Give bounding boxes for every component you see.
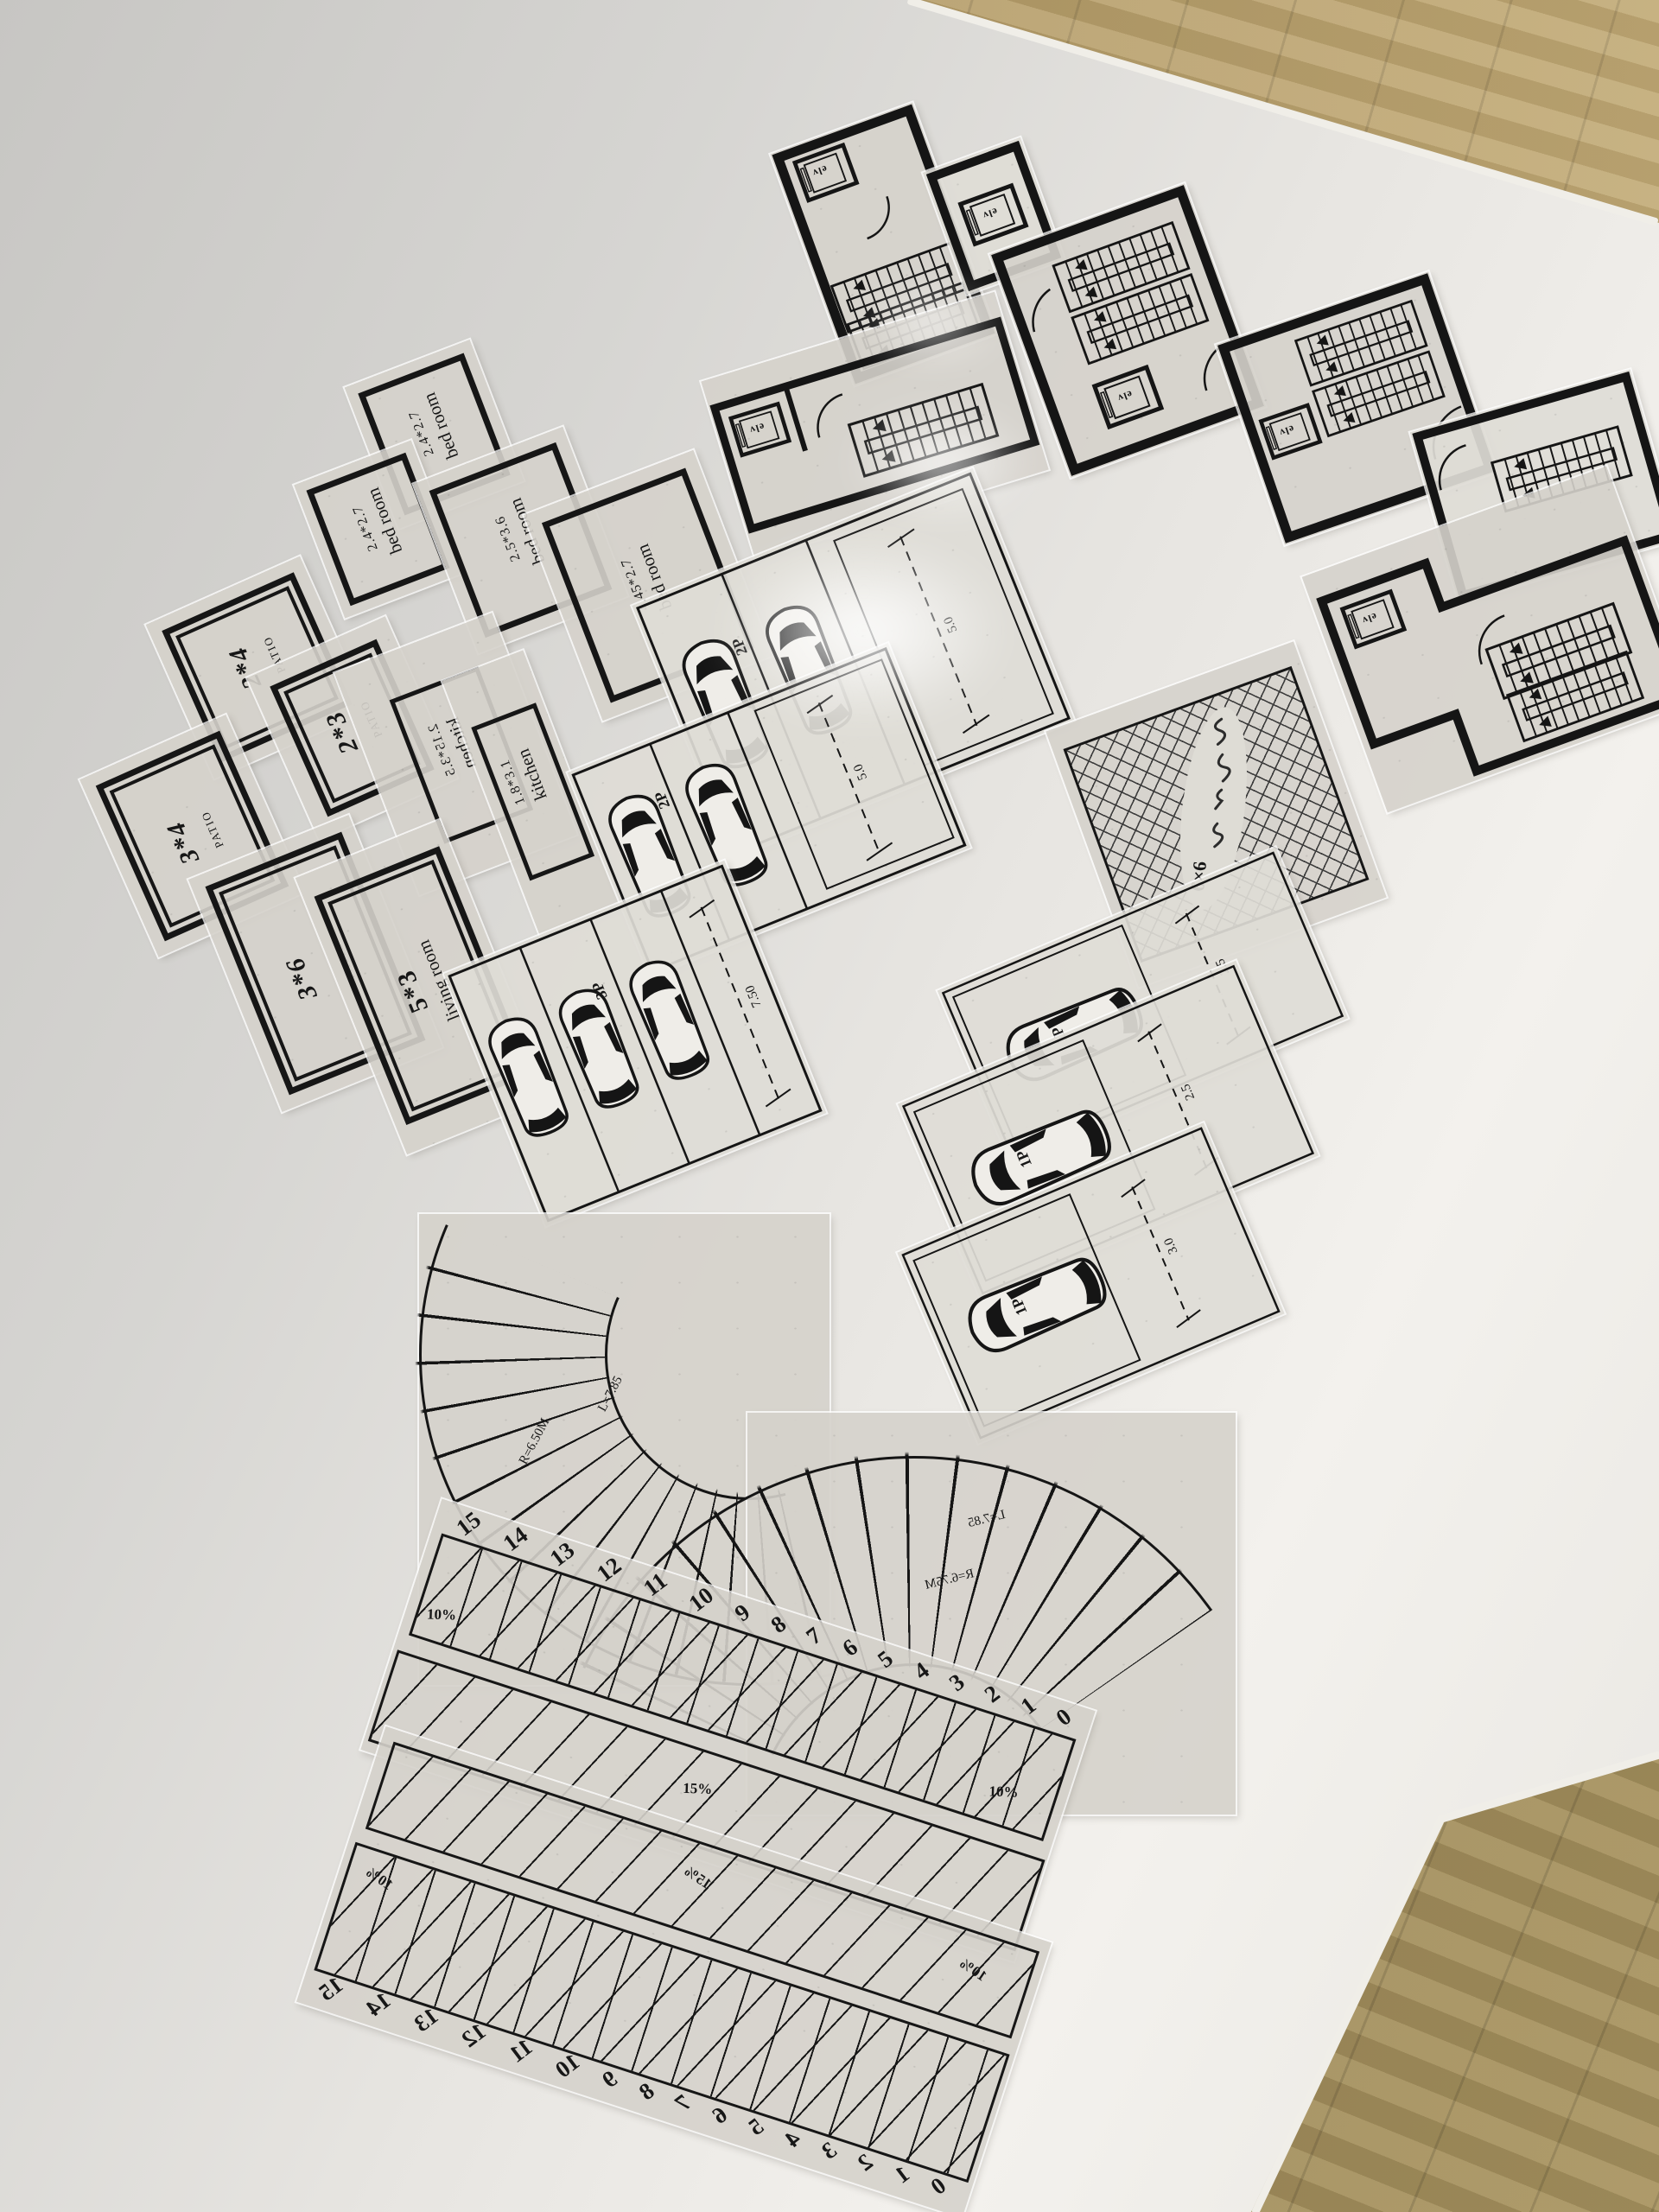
ramp-number: 3 — [944, 1669, 971, 1699]
ramp-number: 0 — [926, 2172, 954, 2204]
ramp-number: 5 — [873, 1645, 899, 1675]
ramp-number: 4 — [908, 1656, 935, 1687]
ramp-number: 9 — [597, 2065, 625, 2097]
ramp-number: 8 — [633, 2077, 661, 2109]
car-icon — [625, 955, 714, 1084]
photo-drafting-templates-on-table: elv elv elv elv — [0, 0, 1659, 2212]
ramp-number: 0 — [1052, 1703, 1078, 1733]
ramp-number: 4 — [780, 2125, 808, 2157]
slope-label: 15% — [683, 1780, 713, 1798]
ramp-number: 7 — [671, 2089, 698, 2121]
car-icon — [962, 1252, 1112, 1357]
ramp-number: 3 — [817, 2137, 844, 2169]
ramp-number: 1 — [889, 2160, 917, 2192]
ramp-number: 6 — [837, 1634, 864, 1664]
ramp-number: 5 — [743, 2113, 771, 2145]
slope-label: 10% — [988, 1783, 1019, 1801]
ramp-number: 2 — [980, 1680, 1007, 1710]
ramp-number: 7 — [801, 1622, 828, 1652]
ramp-number: 1 — [1015, 1692, 1042, 1722]
car-icon — [554, 983, 643, 1112]
ramp-number: 9 — [730, 1599, 757, 1629]
car-icon — [484, 1012, 573, 1141]
ramp-number: 2 — [853, 2148, 880, 2180]
ramp-number: 6 — [707, 2101, 734, 2133]
ramp-number: 8 — [766, 1611, 792, 1641]
slope-label: 10% — [427, 1605, 457, 1624]
